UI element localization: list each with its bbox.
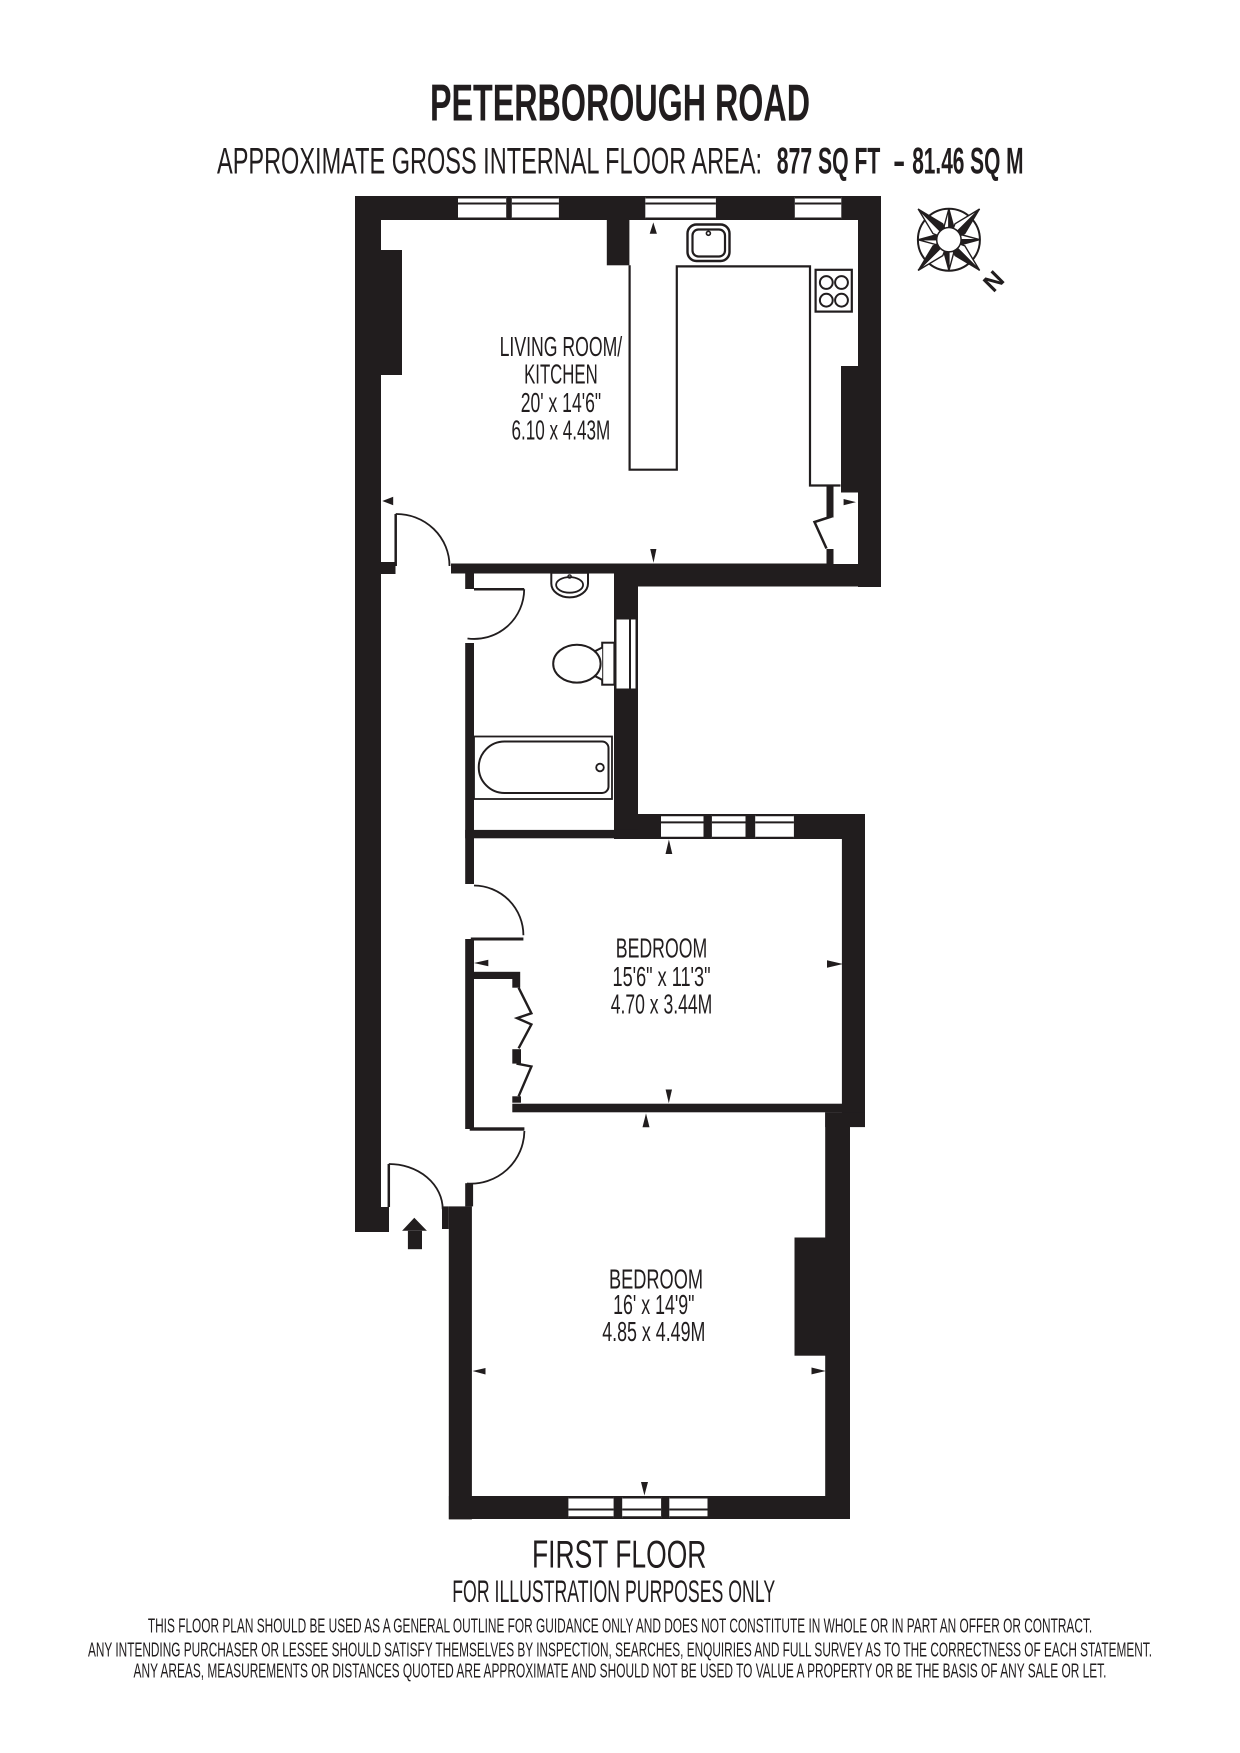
svg-text:81.46 SQ M: 81.46 SQ M xyxy=(912,141,1023,182)
svg-text:LIVING ROOM/: LIVING ROOM/ xyxy=(500,331,623,362)
svg-text:KITCHEN: KITCHEN xyxy=(524,359,598,390)
svg-text:ANY INTENDING PURCHASER OR LES: ANY INTENDING PURCHASER OR LESSEE SHOULD… xyxy=(88,1639,1152,1662)
svg-text:6.10 x 4.43M: 6.10 x 4.43M xyxy=(512,415,611,446)
svg-text:THIS FLOOR PLAN SHOULD BE USED: THIS FLOOR PLAN SHOULD BE USED AS A GENE… xyxy=(148,1614,1092,1637)
svg-text:APPROXIMATE GROSS INTERNAL FLO: APPROXIMATE GROSS INTERNAL FLOOR AREA: xyxy=(217,141,762,182)
svg-text:20' x 14'6": 20' x 14'6" xyxy=(521,387,601,418)
svg-text:15'6" x 11'3": 15'6" x 11'3" xyxy=(613,961,711,992)
svg-text:-: - xyxy=(893,141,905,182)
svg-text:BEDROOM: BEDROOM xyxy=(616,933,707,964)
svg-text:ANY AREAS, MEASUREMENTS OR DIS: ANY AREAS, MEASUREMENTS OR DISTANCES QUO… xyxy=(134,1660,1107,1683)
svg-text:PETERBOROUGH ROAD: PETERBOROUGH ROAD xyxy=(430,75,810,133)
svg-text:4.70 x 3.44M: 4.70 x 3.44M xyxy=(611,989,713,1020)
svg-text:877 SQ FT: 877 SQ FT xyxy=(777,141,881,182)
svg-text:4.85 x 4.49M: 4.85 x 4.49M xyxy=(602,1316,705,1347)
svg-text:FOR ILLUSTRATION PURPOSES ONLY: FOR ILLUSTRATION PURPOSES ONLY xyxy=(452,1573,775,1609)
svg-text:FIRST FLOOR: FIRST FLOOR xyxy=(532,1534,706,1577)
